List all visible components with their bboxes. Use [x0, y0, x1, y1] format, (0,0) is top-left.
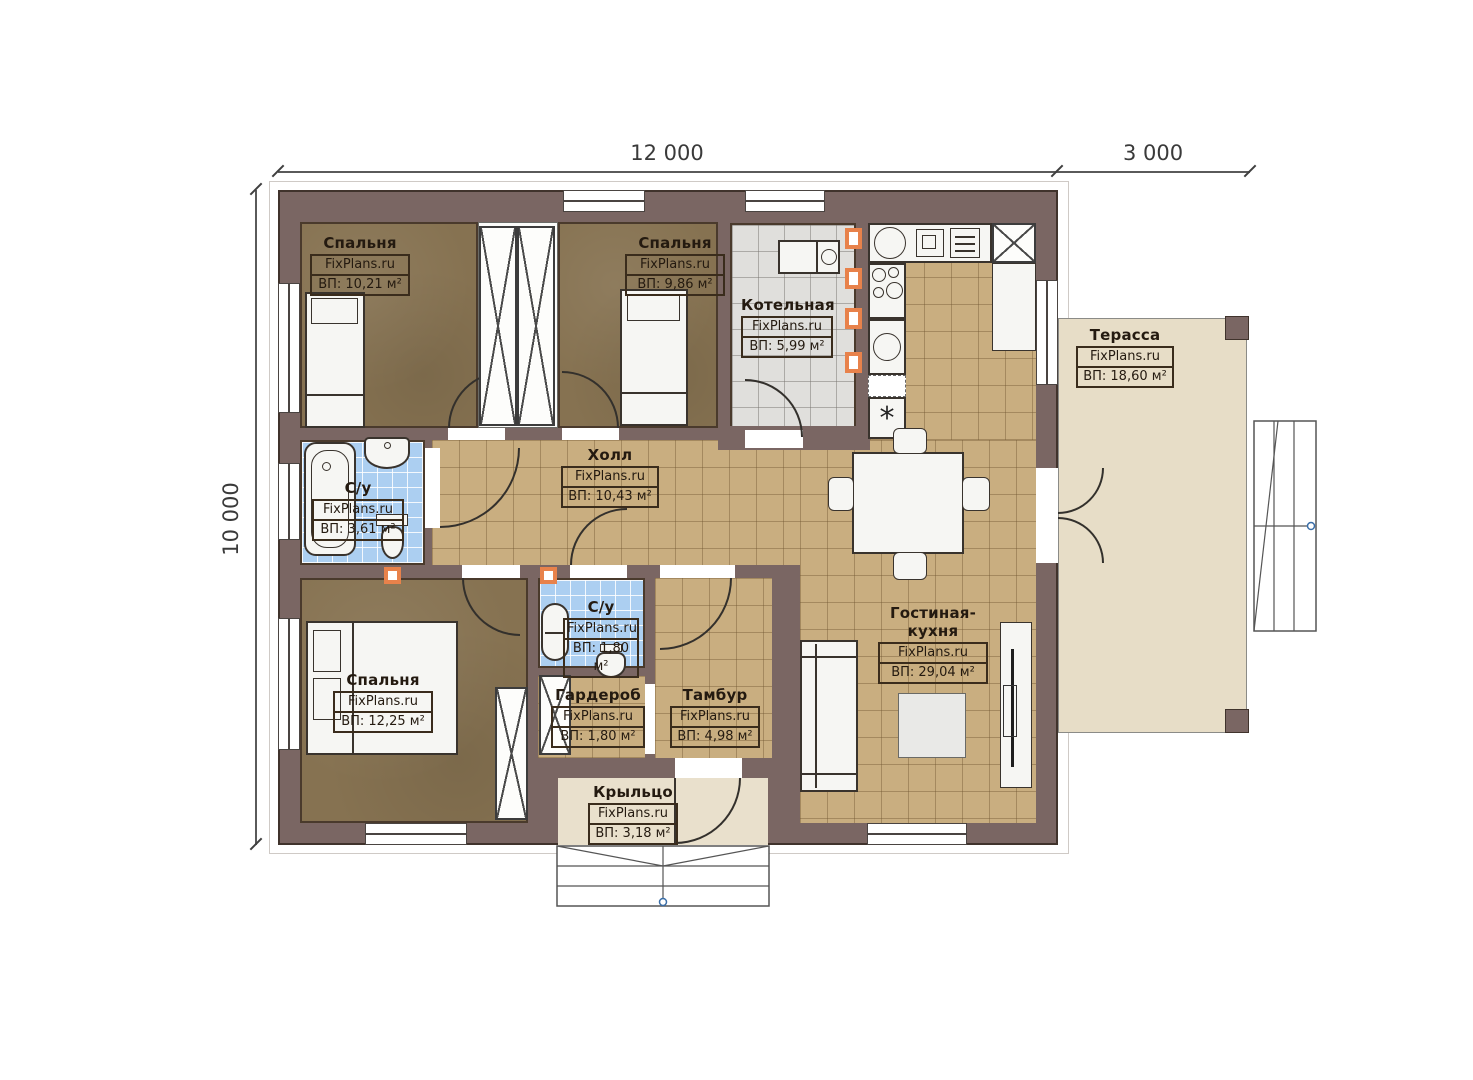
kitchen-sink-icon: [874, 227, 906, 259]
burner: [886, 282, 903, 299]
room-area: ВП: 9,86 м²: [625, 274, 725, 296]
floor-plan-page: 12 000 3 000 10 000: [0, 0, 1473, 1080]
room-name: Спальня: [310, 234, 410, 252]
oven-door: [873, 333, 901, 361]
room-area: ВП: 3,61 м²: [312, 519, 404, 541]
counter-dashed: [868, 375, 906, 397]
flue-marker: [384, 567, 401, 584]
room-label-bedroom2: Спальня FixPlans.ru ВП: 9,86 м²: [625, 234, 725, 296]
window: [365, 823, 467, 845]
room-area: ВП: 3,18 м²: [588, 823, 678, 845]
room-label-tambur: Тамбур FixPlans.ru ВП: 4,98 м²: [670, 686, 760, 748]
brand-watermark: FixPlans.ru: [625, 254, 725, 276]
cooktop-inner: [922, 235, 936, 249]
dish-rack-icon: [950, 228, 980, 258]
brand-watermark: FixPlans.ru: [878, 642, 988, 664]
brand-watermark: FixPlans.ru: [563, 618, 639, 640]
sink-icon: [364, 437, 410, 469]
room-area: ВП: 10,43 м²: [561, 486, 659, 508]
dining-table-icon: [852, 452, 964, 554]
room-area: ВП: 29,04 м²: [878, 662, 988, 684]
room-name: С/у: [312, 479, 404, 497]
room-name: Терасса: [1076, 326, 1174, 344]
brand-watermark: FixPlans.ru: [333, 691, 433, 713]
room-label-hall: Холл FixPlans.ru ВП: 10,43 м²: [561, 446, 659, 508]
room-label-wardrobe: Гардероб FixPlans.ru ВП: 1,80 м²: [551, 686, 645, 748]
drain: [322, 462, 331, 471]
flue-marker: [845, 268, 862, 289]
room-label-boiler: Котельная FixPlans.ru ВП: 5,99 м²: [741, 296, 833, 358]
window: [278, 618, 300, 750]
door-opening: [462, 565, 520, 578]
room-name: Крыльцо: [588, 783, 678, 801]
window: [745, 190, 825, 212]
brand-watermark: FixPlans.ru: [741, 316, 833, 338]
flue-marker: [845, 352, 862, 373]
burner: [873, 287, 884, 298]
porch-stairs: [556, 845, 770, 907]
room-name: Спальня: [625, 234, 725, 252]
sofa-back-line: [815, 644, 817, 788]
room-name: Котельная: [741, 296, 833, 314]
wardrobe-icon: [479, 226, 517, 426]
sofa-armrest-line: [802, 773, 856, 775]
dimension-label-height: 10 000: [219, 454, 243, 584]
pillow-icon: [313, 630, 341, 672]
room-label-porch: Крыльцо FixPlans.ru ВП: 3,18 м²: [588, 783, 678, 845]
terrace-post: [1225, 316, 1249, 340]
room-label-bath1: С/у FixPlans.ru ВП: 3,61 м²: [312, 479, 404, 541]
brand-watermark: FixPlans.ru: [310, 254, 410, 276]
room-area: ВП: 18,60 м²: [1076, 366, 1174, 388]
sofa-armrest-line: [802, 656, 856, 658]
room-area: ВП: 5,99 м²: [741, 336, 833, 358]
door-opening: [448, 428, 505, 440]
wardrobe-icon: [495, 687, 528, 820]
brand-watermark: FixPlans.ru: [588, 803, 678, 825]
room-area: ВП: 4,98 м²: [670, 726, 760, 748]
room-label-bath2: С/у FixPlans.ru ВП: 1,80 м²: [563, 598, 639, 678]
pillow-icon: [311, 298, 358, 324]
door-opening: [660, 565, 735, 578]
corner-cabinet: [992, 263, 1036, 351]
knob-icon: [821, 249, 837, 265]
room-name: С/у: [563, 598, 639, 616]
chair-icon: [962, 477, 990, 511]
brand-watermark: FixPlans.ru: [561, 466, 659, 488]
room-name: Тамбур: [670, 686, 760, 704]
brand-watermark: FixPlans.ru: [1076, 346, 1174, 368]
room-label-living: Гостиная-кухня FixPlans.ru ВП: 29,04 м²: [878, 604, 988, 684]
flue-marker: [845, 308, 862, 329]
bed-icon: [620, 289, 688, 426]
fridge-icon: [992, 223, 1036, 263]
kitchen-counter: [868, 223, 992, 263]
bed-icon: [305, 292, 365, 428]
tv-stand-icon: [1000, 622, 1032, 788]
room-label-bedroom3: Спальня FixPlans.ru ВП: 12,25 м²: [333, 671, 433, 733]
window: [278, 463, 300, 540]
brand-watermark: FixPlans.ru: [312, 499, 404, 521]
pillow-icon: [627, 295, 680, 321]
window: [563, 190, 645, 212]
chair-icon: [828, 477, 854, 511]
terrace-post: [1225, 709, 1249, 733]
blanket-line: [622, 392, 686, 394]
brand-watermark: FixPlans.ru: [551, 706, 645, 728]
door-opening: [645, 684, 655, 754]
window: [1036, 280, 1058, 385]
room-area: ВП: 1,80 м²: [563, 638, 639, 678]
door-opening: [425, 448, 440, 528]
tv-bracket: [1003, 685, 1017, 737]
oven-icon: [868, 319, 906, 375]
divider-line: [816, 242, 818, 272]
room-area: ВП: 1,80 м²: [551, 726, 645, 748]
door-opening: [570, 565, 627, 578]
sofa-icon: [800, 640, 858, 792]
window: [867, 823, 967, 845]
flue-marker: [540, 567, 557, 584]
terrace-door-opening: [1036, 468, 1058, 563]
dimension-line-top: [278, 171, 1250, 173]
dimension-label-terrace-width: 3 000: [1088, 141, 1218, 165]
door-opening: [562, 428, 619, 440]
room-name: Холл: [561, 446, 659, 464]
room-area: ВП: 10,21 м²: [310, 274, 410, 296]
room-name: Гостиная-кухня: [878, 604, 988, 640]
dimension-line-left: [255, 190, 257, 845]
room-area: ВП: 12,25 м²: [333, 711, 433, 733]
burner: [872, 268, 886, 282]
terrace-stairs: [1253, 420, 1317, 632]
flue-marker: [845, 228, 862, 249]
door-opening: [675, 758, 742, 778]
coffee-table-icon: [898, 693, 966, 758]
burner: [888, 267, 899, 278]
sink-line: [545, 632, 565, 634]
washer-glyph: *: [880, 401, 895, 436]
hob-icon: [868, 263, 906, 319]
room-name: Спальня: [333, 671, 433, 689]
blanket-line: [307, 394, 363, 396]
window: [278, 283, 300, 413]
dimension-label-main-width: 12 000: [597, 141, 737, 165]
faucet: [384, 442, 391, 449]
chair-icon: [893, 428, 927, 454]
wardrobe-icon: [517, 226, 555, 426]
brand-watermark: FixPlans.ru: [670, 706, 760, 728]
room-name: Гардероб: [551, 686, 645, 704]
chair-icon: [893, 552, 927, 580]
cooktop-icon: [916, 229, 944, 257]
boiler-unit-icon: [778, 240, 840, 274]
room-label-bedroom1: Спальня FixPlans.ru ВП: 10,21 м²: [310, 234, 410, 296]
room-label-terrace: Терасса FixPlans.ru ВП: 18,60 м²: [1076, 326, 1174, 388]
